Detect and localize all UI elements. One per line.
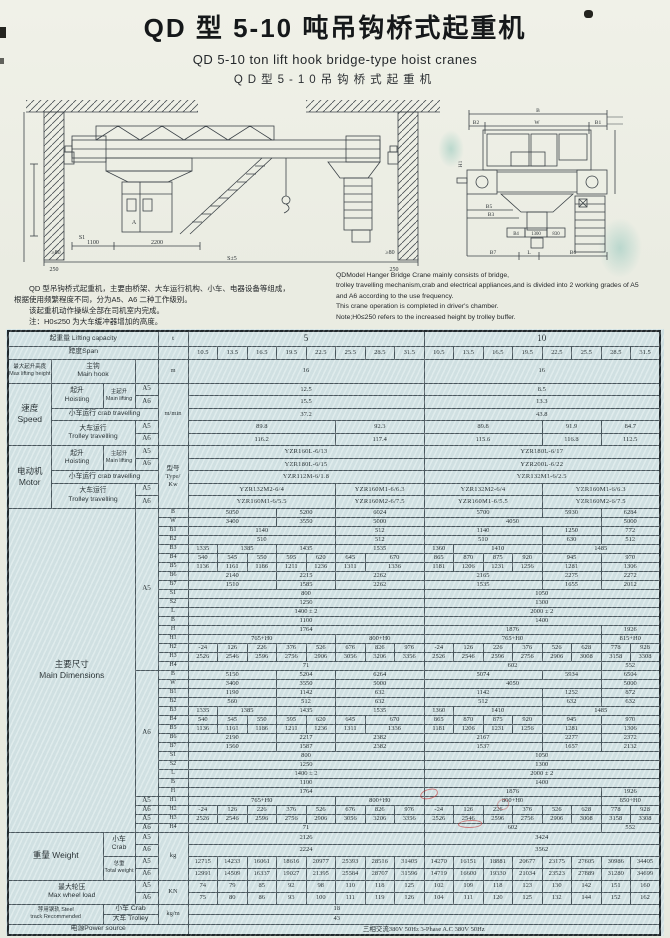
spec-cell: 16 [188,359,424,383]
spec-cell: 小车 Crab [103,832,135,856]
spec-cell: 1385 [218,706,277,715]
spec-cell: 1876 [424,787,601,796]
spec-cell: 800 [188,589,424,598]
spec-cell: A6 [135,844,158,856]
spec-cell: 3550 [277,679,336,688]
spec-cell: 13.5 [218,346,248,359]
spec-cell: 1300 [424,760,660,769]
spec-cell: 102 [424,880,454,892]
spec-cell: 1400 [424,616,660,625]
spec-cell: 5 [188,331,424,346]
spec-cell: 1435 [277,544,336,553]
spec-cell: 2596 [247,814,277,823]
spec-cell: 3308 [631,814,661,823]
spec-cell: 1535 [336,544,425,553]
spec-cell: 632 [336,697,425,706]
spec-cell: 870 [454,553,484,562]
spec-cell: 2190 [188,733,277,742]
spec-cell: 10.5 [188,346,218,359]
spec-cell: 870 [454,715,484,724]
spec-cell: 31596 [395,868,425,880]
spec-cell: 620 [306,553,336,562]
description-line-en: and A6 according to the use frequency. [336,292,666,302]
spec-cell: 19027 [277,868,307,880]
spec-cell: B6 [158,733,188,742]
spec-cell: 13.5 [454,346,484,359]
spec-cell: 118 [365,880,395,892]
spec-cell: 1281 [542,562,601,571]
spec-cell: 510 [188,535,336,544]
spec-cell: 2546 [454,814,484,823]
datum-label-a: A [132,220,137,226]
spec-cell: 2756 [277,652,307,661]
spec-cell: B2 [158,697,188,706]
elevation-dim-labels: 1100 2200 S1 S±5 ≥80 ≥80 250 250 A [50,220,399,273]
spec-cell: 1190 [188,688,277,697]
spec-cell: 1764 [188,625,424,634]
spec-cell: 89.8 [188,421,336,434]
spec-cell: 826 [365,643,395,652]
spec-cell: 6504 [601,670,660,679]
spec-cell: 872 [601,688,660,697]
spec-cell: 43.8 [424,408,660,421]
spec-table-wrapper: 起重量 Lifting capacityt510跨度Span10.513.516… [6,329,664,936]
spec-cell: 630 [542,535,601,544]
spec-cell: 676 [336,805,366,814]
spec-cell: A6 [135,805,158,814]
dim-label-w: W [534,120,540,126]
spec-cell: 三相交流380V 50Hz 3-Phase A.C 380V 50Hz [188,924,660,935]
spec-cell: 125 [513,892,543,904]
spec-cell: 5000 [601,517,660,526]
dim-label-830: 830 [552,232,560,237]
spec-cell: 13.3 [424,396,660,409]
spec-cell: 5000 [336,517,425,526]
spec-cell: 92 [277,880,307,892]
spec-cell: S2 [158,598,188,607]
spec-cell: 84.7 [601,421,660,434]
spec-cell: 25393 [336,856,366,868]
spec-cell: 1335 [188,544,218,553]
spec-cell: B7 [158,580,188,589]
spec-cell: B5 [158,562,188,571]
spec-cell: 16600 [454,868,484,880]
spec-cell: B6 [158,571,188,580]
spec-cell: 151 [601,880,631,892]
spec-cell: H [158,787,188,796]
spec-row: 大车 Trolley43 [8,914,660,924]
spec-cell: 92.3 [336,421,425,434]
spec-cell: 920 [513,553,543,562]
spec-cell: 2000 ± 2 [424,769,660,778]
spec-cell: 945 [542,715,601,724]
spec-cell: 226 [247,805,277,814]
spec-cell: B1 [158,526,188,535]
spec-cell: A6 [135,868,158,880]
spec-cell: H3 [158,652,188,661]
spec-cell: 645 [336,553,366,562]
spec-cell: 765+H0 [188,634,336,643]
spec-cell: 1410 [454,544,543,553]
spec-row: 跨度Span10.513.516.519.522.525.528.531.510… [8,346,660,359]
spec-cell: 37.2 [188,408,424,421]
spec-cell: 电动机 Motor [8,446,51,509]
spec-cell: 512 [277,697,336,706]
spec-cell: 800+H0 [336,634,425,643]
dim-label-span: S±5 [227,256,237,262]
spec-cell: 最大轮压 Max wheel load [8,880,135,904]
spec-row: 起重量 Lifting capacityt510 [8,331,660,346]
spec-cell: 1535 [424,580,542,589]
spec-cell: 5050 [188,508,277,517]
description-line-zh: 根据使用频繁程度不同，分为A5、A6 二种工作级别。 [14,294,336,305]
spec-cell: 5074 [424,670,542,679]
spec-row: 速度 Speed起升 Hoisting主起升 Main liftingA5m/m… [8,383,660,396]
dim-label-b7: B7 [490,250,497,256]
spec-cell: 226 [483,643,513,652]
spec-cell: H4 [158,661,188,670]
spec-cell: 126 [395,892,425,904]
spec-cell: A5 [135,880,158,892]
spec-cell: 28.5 [365,346,395,359]
spec-cell: 6284 [601,508,660,517]
spec-cell: 速度 Speed [8,383,51,446]
spec-cell: 1136 [188,562,218,571]
spec-cell: 主起升 Main lifting [103,383,135,408]
spec-cell: -24 [188,643,218,652]
spec-cell: 111 [336,892,366,904]
spec-cell: 865 [424,715,454,724]
spec-cell: 14233 [218,856,248,868]
spec-cell: 162 [631,892,661,904]
spec-cell: A5 [135,856,158,868]
spec-cell: 1360 [424,706,454,715]
spec-cell: 荐用钢轨 Steel track Recommended [8,904,103,924]
spec-cell: 4050 [424,517,601,526]
spec-cell: B4 [158,715,188,724]
spec-cell: 1142 [277,688,336,697]
spec-cell: W [158,517,188,526]
spec-cell: 1306 [601,724,660,733]
spec-cell: 376 [513,643,543,652]
spec-cell: 2272 [601,571,660,580]
spec-cell: 144 [572,892,602,904]
spec-cell: 800+H0 [424,796,601,805]
spec-cell: 2756 [277,814,307,823]
dim-label-b: B [536,108,540,114]
spec-cell: 632 [601,697,660,706]
spec-cell: A6 [135,823,158,832]
spec-cell: m/min [158,383,188,446]
spec-cell: 123 [513,880,543,892]
spec-cell: 18 [188,904,660,914]
spec-cell: A5 [135,383,158,396]
spec-cell: A5 [135,814,158,823]
spec-cell: 109 [454,880,484,892]
spec-cell: -24 [188,805,218,814]
spec-cell: 98 [306,880,336,892]
spec-cell: 850+H0 [601,796,660,805]
spec-cell: 12715 [188,856,218,868]
spec-cell: 119 [365,892,395,904]
spec-cell: 1311 [336,562,366,571]
spec-row: 电源Power source三相交流380V 50Hz 3-Phase A.C … [8,924,660,935]
spec-cell: 主钩 Main hook [51,359,135,383]
spec-cell: 1140 [424,526,542,535]
spec-row: 小车运行 crab travelling37.243.8 [8,408,660,421]
spec-cell: 628 [572,805,602,814]
spec-cell: 226 [247,643,277,652]
spec-cell: 595 [277,553,307,562]
spec-cell: 765+H0 [188,796,336,805]
spec-cell: 71 [188,661,424,670]
spec-cell: 23523 [542,868,572,880]
spec-cell: 772 [601,526,660,535]
spec-cell: 945 [542,553,601,562]
spec-cell: 19.5 [277,346,307,359]
dim-label-b4: B4 [513,232,519,237]
spec-row: 大车运行 Trolley travellingA5YZR132M2-6/4YZR… [8,483,660,496]
spec-cell: 18616 [277,856,307,868]
dim-label-ge80-left: ≥80 [51,250,60,256]
spec-cell: 1335 [188,706,218,715]
spec-cell: 2217 [277,733,336,742]
spec-cell: 起升 Hoisting [51,446,103,471]
spec-cell: 970 [601,553,660,562]
spec-cell: 670 [365,715,424,724]
spec-cell: 25584 [336,868,366,880]
spec-cell: 1161 [218,724,248,733]
spec-cell: 118 [483,880,513,892]
spec-cell: 12.5 [188,383,424,396]
spec-cell: 3308 [631,652,661,661]
spec-cell: 18881 [483,856,513,868]
spec-cell: 117.4 [336,433,425,446]
spec-cell: 28.5 [601,346,631,359]
spec-cell: 34699 [631,868,661,880]
spec-row: 电动机 Motor起升 Hoisting主起升 Main liftingA5型号… [8,446,660,459]
spec-cell: 1256 [513,724,543,733]
crane-elevation-drawing: 1100 2200 S1 S±5 ≥80 ≥80 250 250 A [10,96,442,278]
spec-cell: 3206 [365,814,395,823]
spec-cell: 1231 [483,724,513,733]
spec-cell: 16061 [247,856,277,868]
spec-cell: 起重量 Lifting capacity [8,331,158,346]
spec-cell: A5 [135,483,158,496]
spec-cell: A6 [135,458,158,471]
spec-cell: 86 [247,892,277,904]
spec-cell: 104 [424,892,454,904]
spec-cell: 765+H0 [424,634,601,643]
description-line-en: Note;H0≤250 refers to the increased heig… [336,313,666,323]
spec-cell: 3562 [424,844,660,856]
spec-cell: W [158,679,188,688]
spec-cell: 1050 [424,751,660,760]
section-linework [457,110,623,260]
spec-cell: 2167 [424,733,542,742]
spec-cell: 976 [395,643,425,652]
spec-cell: 起升 Hoisting [51,383,103,408]
spec-cell: 126 [454,805,484,814]
spec-cell: B [158,616,188,625]
dim-label-h1: H1 [458,160,464,167]
spec-cell: 111 [454,892,484,904]
spec-cell: 电源Power source [8,924,188,935]
spec-cell: 1655 [542,580,601,589]
crane-section-drawing: B W B2 B1 H1 B5 B3 B4 1300 830 B7 L B6 [455,104,625,266]
spec-cell: 2906 [306,814,336,823]
spec-cell: 540 [188,715,218,724]
spec-cell: 526 [306,643,336,652]
spec-row: 最大轮压 Max wheel loadA5KN74798592981101181… [8,880,660,892]
spec-cell: 14270 [424,856,454,868]
spec-cell: 126 [218,805,248,814]
spec-cell: 1206 [454,724,484,733]
spec-cell: 总重 Total weight [103,856,135,880]
spec-cell: 2262 [336,571,425,580]
spec-cell: 1585 [277,580,336,589]
spec-cell: 632 [542,697,601,706]
spec-cell: 21395 [306,868,336,880]
spec-cell: 778 [601,805,631,814]
spec-cell: YZR200L-6/22 [424,458,660,471]
spec-cell: YZR160L-6/13 [188,446,424,459]
spec-cell: 2372 [601,733,660,742]
spec-cell: 1537 [424,742,542,751]
spec-cell: 2382 [336,733,425,742]
spec-cell: 3056 [336,814,366,823]
dim-label-b5: B5 [486,204,493,210]
spec-cell: 1211 [277,724,307,733]
dim-label-ge80-right: ≥80 [385,250,394,256]
spec-cell: A6 [135,496,158,509]
dim-label-l: L [527,250,531,256]
spec-cell: 126 [218,643,248,652]
spec-cell: 152 [601,892,631,904]
spec-cell: A5 [135,832,158,844]
spec-cell: 116.2 [188,433,336,446]
spec-cell: 132 [542,892,572,904]
spec-cell: 2906 [542,814,572,823]
spec-cell: 120 [483,892,513,904]
spec-cell: 376 [277,643,307,652]
spec-cell: 3400 [188,679,277,688]
spec-cell: 14509 [218,868,248,880]
spec-cell: 602 [424,661,601,670]
dim-label-b6: B6 [570,250,577,256]
spec-cell: 3206 [365,652,395,661]
spec-cell: B1 [158,688,188,697]
spec-cell: 2277 [542,733,601,742]
spec-cell: 512 [336,535,425,544]
spec-cell: -24 [424,643,454,652]
spec-cell: 3400 [188,517,277,526]
spec-row: 总重 Total weightA512715142331606118616209… [8,856,660,868]
spec-cell: -24 [424,805,454,814]
spec-cell: 型号 Type/ Kw [158,446,188,509]
spec-cell: L [158,769,188,778]
spec-cell: 3356 [395,814,425,823]
spec-cell: 12991 [188,868,218,880]
spec-cell: 550 [247,715,277,724]
spec-cell: YZR112M-6/1.8 [188,471,424,484]
spec-cell: 676 [336,643,366,652]
spec-cell [158,346,188,359]
spec-cell: 976 [395,805,425,814]
spec-cell: 1281 [542,724,601,733]
spec-cell: 526 [542,805,572,814]
description-line-en: This crane operation is completed in dri… [336,302,666,312]
spec-cell: m [158,359,188,383]
spec-cell: 16.5 [247,346,277,359]
spec-cell: 620 [306,715,336,724]
spec-cell: 20677 [513,856,543,868]
spec-cell: 100 [306,892,336,904]
spec-cell: H4 [158,823,188,832]
spec-cell: 826 [365,805,395,814]
spec-cell: 552 [601,823,660,832]
spec-cell: 6024 [336,508,425,517]
spec-cell: YZR160M1-6/6.3 [542,483,660,496]
spec-cell: 2275 [542,571,601,580]
spec-cell: 1186 [247,724,277,733]
spec-cell: 1400 ± 2 [188,769,424,778]
spec-cell: 800 [188,751,424,760]
spec-cell: 2126 [188,832,424,844]
description-line-zh: 注：H0≤250 为大车缓冲器增加的高度。 [14,316,336,327]
spec-cell: 14719 [424,868,454,880]
spec-cell: 10 [424,331,660,346]
spec-cell: 小车运行 crab travelling [51,408,158,421]
spec-cell: 2596 [483,814,513,823]
spec-cell: B [158,670,188,679]
spec-cell: 19.5 [513,346,543,359]
spec-cell: B2 [158,535,188,544]
spec-cell: 2546 [218,652,248,661]
spec-cell: 1926 [601,625,660,634]
spec-cell: B3 [158,706,188,715]
spec-cell: 1236 [306,562,336,571]
spec-cell: 6264 [336,670,425,679]
spec-cell: 645 [336,715,366,724]
spec-cell: 778 [601,643,631,652]
spec-cell: 5700 [424,508,542,517]
description-line-en: trolley travelling mechanism,crab and el… [336,281,666,291]
spec-cell: 1435 [277,706,336,715]
spec-cell: 21034 [513,868,543,880]
spec-cell: 20977 [306,856,336,868]
spec-cell: 1657 [542,742,601,751]
spec-cell: 2165 [424,571,542,580]
spec-cell: t [158,331,188,346]
spec-cell: 1510 [188,580,277,589]
spec-table: 起重量 Lifting capacityt510跨度Span10.513.516… [7,330,661,936]
spec-cell: 1360 [424,544,454,553]
spec-cell: 31405 [395,856,425,868]
spec-cell: 226 [483,805,513,814]
spec-cell: 2906 [542,652,572,661]
spec-cell: 1306 [601,562,660,571]
spec-cell: 71 [188,823,424,832]
spec-cell: L [158,607,188,616]
spec-cell: 1256 [513,562,543,571]
spec-cell: 526 [306,805,336,814]
spec-cell: 2596 [483,652,513,661]
spec-row: 大车运行 Trolley travellingA589.892.389.891.… [8,421,660,434]
spec-cell: 5150 [188,670,277,679]
spec-cell: kg [158,832,188,880]
spec-cell: 2224 [188,844,424,856]
